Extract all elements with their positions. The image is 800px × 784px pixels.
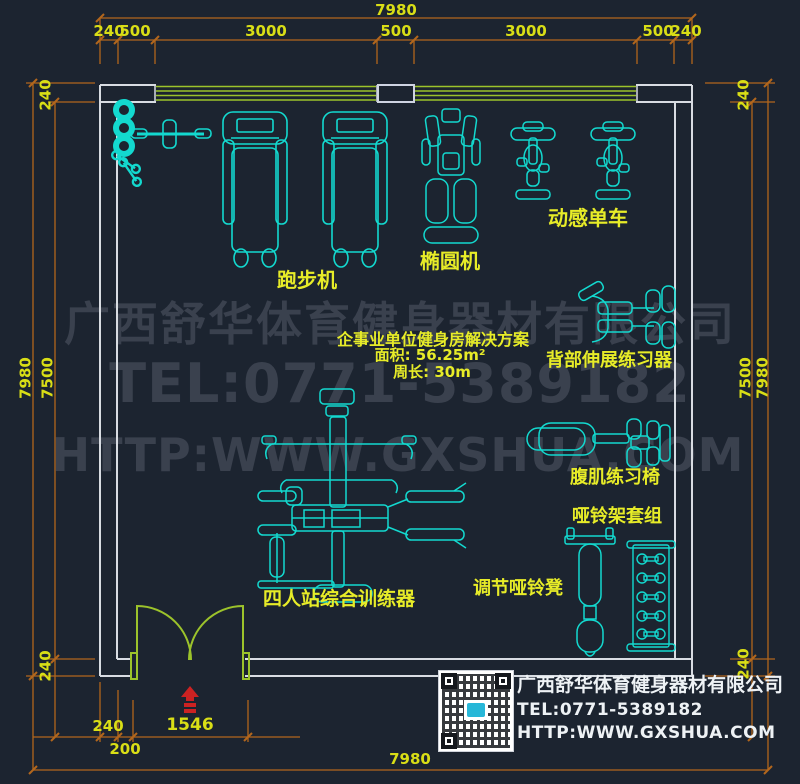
equipment-multi-station (258, 389, 466, 602)
dim-left-wall-bottom: 240 (39, 650, 54, 681)
equipment-ab-chair (527, 419, 670, 467)
qr-center-logo (464, 700, 488, 720)
plan-perimeter: 周长: 30m (393, 361, 471, 382)
plan-drawing (0, 0, 800, 784)
dim-right-overall: 7980 (756, 357, 771, 399)
label-dumbbell-rack: 哑铃架套组 (572, 508, 662, 527)
label-treadmill: 跑步机 (277, 270, 337, 291)
ab-wheel (131, 120, 211, 148)
dim-right-inner: 7500 (739, 357, 754, 399)
label-ab-chair: 腹肌练习椅 (570, 469, 660, 488)
dim-bottom-wall: 240 (92, 719, 123, 734)
qr-finder-bl (441, 733, 457, 749)
entrance-marker-icon (181, 686, 199, 713)
dim-bottom-total: 7980 (389, 752, 431, 767)
dim-left-overall: 7980 (19, 357, 34, 399)
dimension-lines (26, 18, 775, 770)
footer-tel: TEL:0771-5389182 (517, 702, 703, 719)
floor-plan-canvas: 广西舒华体育健身器材有限公司 TEL:0771-5389182 HTTP:WWW… (0, 0, 800, 784)
equipment-dumbbell-rack (627, 541, 675, 651)
qr-finder-tl (441, 673, 457, 689)
qr-finder-tr (495, 673, 511, 689)
dim-top-seg-1: 500 (119, 24, 150, 39)
dim-bottom-door: 1546 (166, 717, 213, 734)
qr-code (438, 670, 514, 752)
equipment-corner-accessories (111, 102, 211, 187)
equipment-dumbbell-bench (565, 528, 615, 656)
entry-door (131, 606, 249, 679)
dim-top-seg-2: 3000 (245, 24, 287, 39)
dim-top-seg-6: 240 (670, 24, 701, 39)
dim-top-seg-3: 500 (380, 24, 411, 39)
pillar (378, 85, 414, 102)
dim-bottom-offset: 200 (109, 742, 140, 757)
dim-top-seg-4: 3000 (505, 24, 547, 39)
label-spin-bike: 动感单车 (548, 208, 628, 229)
label-elliptical: 椭圆机 (420, 251, 480, 272)
label-back-extension: 背部伸展练习器 (546, 352, 672, 371)
footer-company: 广西舒华体育健身器材有限公司 (517, 676, 783, 695)
weight-plates (116, 102, 132, 154)
dim-top-seg-5: 500 (642, 24, 673, 39)
equipment-elliptical (422, 109, 480, 243)
equipment-treadmills (223, 112, 387, 267)
label-dumbbell-bench: 调节哑铃凳 (473, 580, 563, 599)
dim-left-wall-top: 240 (39, 79, 54, 110)
label-multi-station: 四人站综合训练器 (263, 590, 415, 610)
dim-right-wall-top: 240 (737, 79, 752, 110)
equipment-spin-bikes (511, 122, 635, 199)
footer-web: HTTP:WWW.GXSHUA.COM (517, 725, 775, 742)
dim-top-total: 7980 (375, 3, 417, 18)
equipment-back-extension (577, 280, 675, 348)
dim-left-inner: 7500 (41, 357, 56, 399)
